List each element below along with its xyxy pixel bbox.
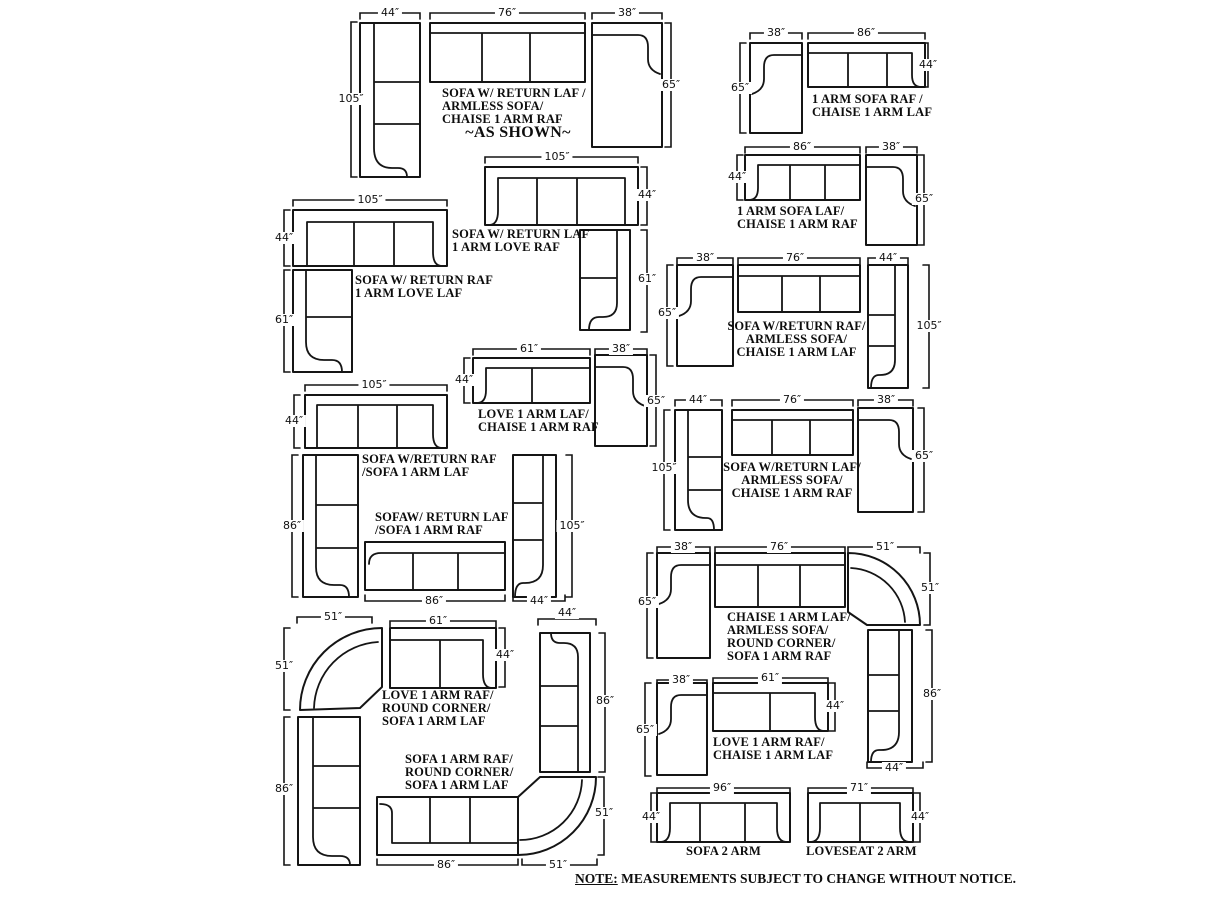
dim-label: 86″: [854, 27, 878, 39]
dim-label: 105″: [648, 462, 679, 474]
config-label: SOFA 2 ARM: [657, 845, 790, 858]
dim-label: 51″: [873, 541, 897, 553]
dim-label: 38″: [764, 27, 788, 39]
note-text: MEASUREMENTS SUBJECT TO CHANGE WITHOUT N…: [621, 871, 1016, 886]
config-label: SOFA W/RETURN LAF/ ARMLESS SOFA/ CHAISE …: [722, 461, 862, 500]
dim-label: 44″: [916, 59, 940, 71]
label-line: CHAISE 1 ARM RAF: [722, 487, 862, 500]
label-line: LOVESEAT 2 ARM: [806, 845, 913, 858]
dim-label: 44″: [908, 811, 932, 823]
config-label: LOVE 1 ARM RAF/ CHAISE 1 ARM LAF: [713, 736, 833, 762]
config-label: CHAISE 1 ARM LAF/ ARMLESS SOFA/ ROUND CO…: [727, 611, 851, 663]
label-line: SOFA 2 ARM: [657, 845, 790, 858]
config-label: SOFAW/ RETURN LAF /SOFA 1 ARM RAF: [375, 511, 509, 537]
diagram-line-art: [0, 0, 1220, 900]
dim-label: 44″: [282, 415, 306, 427]
dim-label: 86″: [434, 859, 458, 871]
dim-label: 38″: [669, 674, 693, 686]
dim-label: 51″: [321, 611, 345, 623]
config-label: 1 ARM SOFA RAF / CHAISE 1 ARM LAF: [812, 93, 932, 119]
dim-label: 44″: [639, 811, 663, 823]
dim-label: 105″: [358, 379, 389, 391]
dim-label: 44″: [527, 595, 551, 607]
dim-label: 38″: [609, 343, 633, 355]
dim-label: 65″: [635, 596, 659, 608]
dim-label: 76″: [767, 541, 791, 553]
config-label: LOVESEAT 2 ARM: [806, 845, 913, 858]
config-label: SOFA 1 ARM RAF/ ROUND CORNER/ SOFA 1 ARM…: [405, 753, 514, 792]
dimension-brackets: [284, 13, 932, 865]
label-line: CHAISE 1 ARM RAF: [737, 218, 858, 231]
config-label: 1 ARM SOFA LAF/ CHAISE 1 ARM RAF: [737, 205, 858, 231]
dim-label: 38″: [615, 7, 639, 19]
label-line: /SOFA 1 ARM RAF: [375, 524, 509, 537]
dim-label: 105″: [913, 320, 944, 332]
dim-label: 51″: [546, 859, 570, 871]
dim-label: 61″: [635, 273, 659, 285]
dim-label: 76″: [780, 394, 804, 406]
dim-label: 65″: [659, 79, 683, 91]
dim-label: 44″: [876, 252, 900, 264]
dim-label: 44″: [493, 649, 517, 661]
dim-label: 86″: [280, 520, 304, 532]
dim-label: 105″: [335, 93, 366, 105]
dim-label: 105″: [556, 520, 587, 532]
label-line: CHAISE 1 ARM LAF: [724, 346, 869, 359]
label-line: /SOFA 1 ARM LAF: [362, 466, 497, 479]
dim-label: 51″: [918, 582, 942, 594]
group-b-outline: [750, 43, 925, 133]
label-line: SOFA 1 ARM LAF: [382, 715, 494, 728]
dim-label: 38″: [874, 394, 898, 406]
dim-label: 96″: [710, 782, 734, 794]
footer-note: NOTE: MEASUREMENTS SUBJECT TO CHANGE WIT…: [575, 871, 1016, 887]
label-line: 1 ARM LOVE RAF: [452, 241, 589, 254]
config-label: SOFA W/RETURN RAF /SOFA 1 ARM LAF: [362, 453, 497, 479]
dim-label: 51″: [592, 807, 616, 819]
config-label: SOFA W/ RETURN RAF 1 ARM LOVE LAF: [355, 274, 493, 300]
dim-label: 105″: [541, 151, 572, 163]
label-line: CHAISE 1 ARM LAF: [812, 106, 932, 119]
dim-label: 76″: [495, 7, 519, 19]
dim-label: 65″: [633, 724, 657, 736]
dim-label: 61″: [758, 672, 782, 684]
label-line: CHAISE 1 ARM RAF: [478, 421, 599, 434]
dim-label: 65″: [655, 307, 679, 319]
as-shown-callout: ~AS SHOWN~: [444, 124, 592, 142]
dim-label: 105″: [354, 194, 385, 206]
dim-label: 38″: [671, 541, 695, 553]
label-line: SOFA 1 ARM RAF: [727, 650, 851, 663]
dim-label: 44″: [378, 7, 402, 19]
label-line: 1 ARM LOVE LAF: [355, 287, 493, 300]
note-prefix: NOTE:: [575, 871, 618, 886]
sectional-spec-sheet: 44″ 76″ 38″ 105″ 65″ 38″ 86″ 65″ 44″ 86″…: [0, 0, 1220, 900]
dim-label: 44″: [823, 700, 847, 712]
dim-label: 61″: [517, 343, 541, 355]
dim-label: 65″: [912, 193, 936, 205]
dim-label: 61″: [272, 314, 296, 326]
dim-label: 44″: [882, 762, 906, 774]
dim-label: 44″: [686, 394, 710, 406]
dim-label: 86″: [422, 595, 446, 607]
dim-label: 44″: [725, 171, 749, 183]
dim-label: 65″: [912, 450, 936, 462]
dim-label: 71″: [847, 782, 871, 794]
label-line: CHAISE 1 ARM LAF: [713, 749, 833, 762]
dim-label: 86″: [920, 688, 944, 700]
dim-label: 86″: [272, 783, 296, 795]
config-label: LOVE 1 ARM LAF/ CHAISE 1 ARM RAF: [478, 408, 599, 434]
config-label: SOFA W/ RETURN LAF 1 ARM LOVE RAF: [452, 228, 589, 254]
config-label: LOVE 1 ARM RAF/ ROUND CORNER/ SOFA 1 ARM…: [382, 689, 494, 728]
group-o-outline: [657, 793, 913, 842]
dim-label: 44″: [555, 607, 579, 619]
dim-label: 86″: [593, 695, 617, 707]
dim-label: 65″: [644, 395, 668, 407]
dim-label: 44″: [452, 374, 476, 386]
dim-label: 51″: [272, 660, 296, 672]
dim-label: 65″: [728, 82, 752, 94]
dim-label: 76″: [783, 252, 807, 264]
dim-label: 86″: [790, 141, 814, 153]
label-line: SOFA 1 ARM LAF: [405, 779, 514, 792]
dim-label: 38″: [693, 252, 717, 264]
dim-label: 44″: [635, 189, 659, 201]
dim-label: 38″: [879, 141, 903, 153]
config-label: SOFA W/RETURN RAF/ ARMLESS SOFA/ CHAISE …: [724, 320, 869, 359]
dim-label: 61″: [426, 615, 450, 627]
dim-label: 44″: [272, 232, 296, 244]
group-c-outline: [745, 155, 917, 245]
config-label-as-shown: SOFA W/ RETURN LAF / ARMLESS SOFA/ CHAIS…: [442, 87, 586, 126]
